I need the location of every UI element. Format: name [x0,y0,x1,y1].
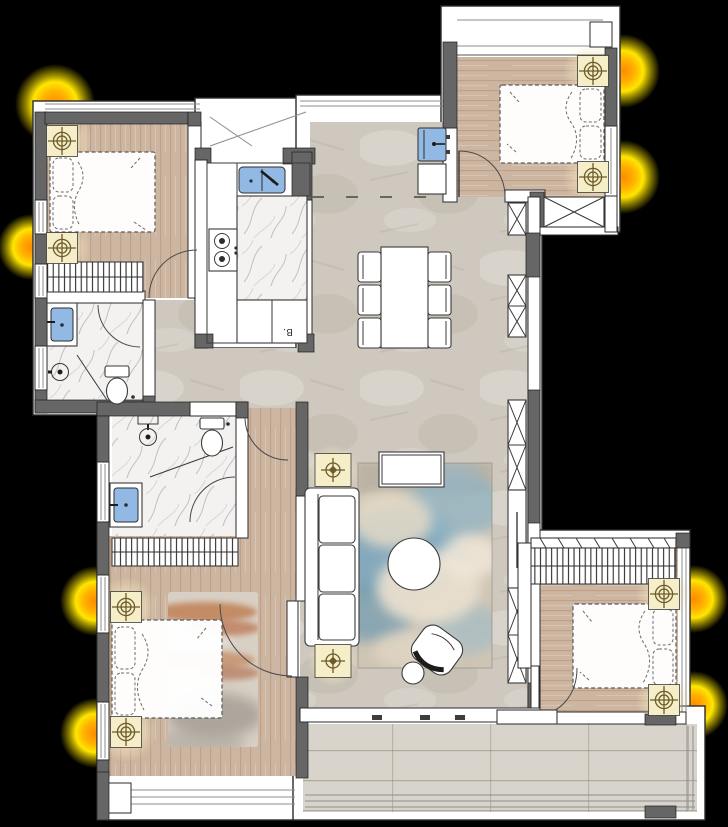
bath-sink [110,483,142,527]
ceiling-light-symbol [649,685,680,716]
kitchen-sink [239,167,285,193]
entry-utility [418,128,450,194]
wall [188,112,201,126]
window-left-3 [35,346,47,390]
dining-table [381,247,428,348]
wall [526,233,540,277]
utility-cabinet [418,164,446,194]
sofa-cushion [319,545,355,592]
sofa [305,488,359,646]
wall [296,677,308,778]
wall [236,402,248,418]
ceiling-light-symbol [47,126,78,157]
column [590,22,612,47]
partition [143,300,155,400]
wall [676,533,690,548]
partition [518,543,531,668]
dining-chair [428,318,451,348]
stool [402,662,424,684]
coffee-table [379,452,444,487]
window-master-bath [97,462,109,522]
dining-chair [358,285,381,315]
dining-set [358,247,451,348]
partition [605,196,617,232]
ceiling-light-symbol [111,592,142,623]
kitchen-island [237,196,307,300]
ceiling-light-symbol [578,162,609,193]
bath-sink [47,303,77,346]
dining-chair [428,252,451,282]
floor-plan: B. [0,0,728,827]
wall [97,402,190,416]
wall [35,234,47,264]
wardrobe [112,538,238,566]
sofa-cushion [319,594,355,640]
wall [45,112,188,124]
wall [97,522,109,575]
wall [195,334,213,348]
wall [35,112,47,200]
wall [296,402,308,496]
wall [97,633,109,702]
dining-chair [358,252,381,282]
wall [645,806,676,818]
bed [573,604,676,688]
cabinet-x [508,203,526,235]
floor-lamp-symbol [315,454,351,487]
partition [47,291,145,303]
ceiling-light-symbol [47,233,78,264]
window-left-1 [35,200,47,234]
wall [97,416,109,462]
partition [195,160,207,348]
wardrobe [47,262,143,292]
floor-plan-stage: B. [0,0,728,827]
ceiling-light-symbol [578,56,609,87]
cabinet-label: B. [283,326,293,337]
cabinet-x [508,275,526,337]
utility-sink [418,128,450,161]
closet-x [544,197,604,227]
window-master-1 [97,575,109,633]
bed [500,85,604,163]
floor-lamp-symbol [315,645,351,678]
threshold [497,710,557,724]
dining-chair [428,285,451,315]
stove [209,229,238,271]
wardrobe [531,538,676,584]
round-table [388,538,440,590]
ceiling-light-symbol [649,579,680,610]
floor-corridor [245,408,297,540]
bed [112,620,222,718]
partition [236,402,248,538]
sofa-cushion [319,496,355,543]
window-master-2 [97,702,109,760]
window-left-2 [35,264,47,298]
wall [97,772,109,820]
bed [50,152,155,232]
cabinet-x [508,400,526,490]
wall [528,390,540,523]
wall [35,298,47,346]
floor-hall [145,348,308,408]
kitchen-base-cabinet: B. [237,300,307,343]
ceiling-light-symbol [111,717,142,748]
wall [443,42,457,128]
floor-balcony [303,724,697,812]
dining-chair [358,318,381,348]
